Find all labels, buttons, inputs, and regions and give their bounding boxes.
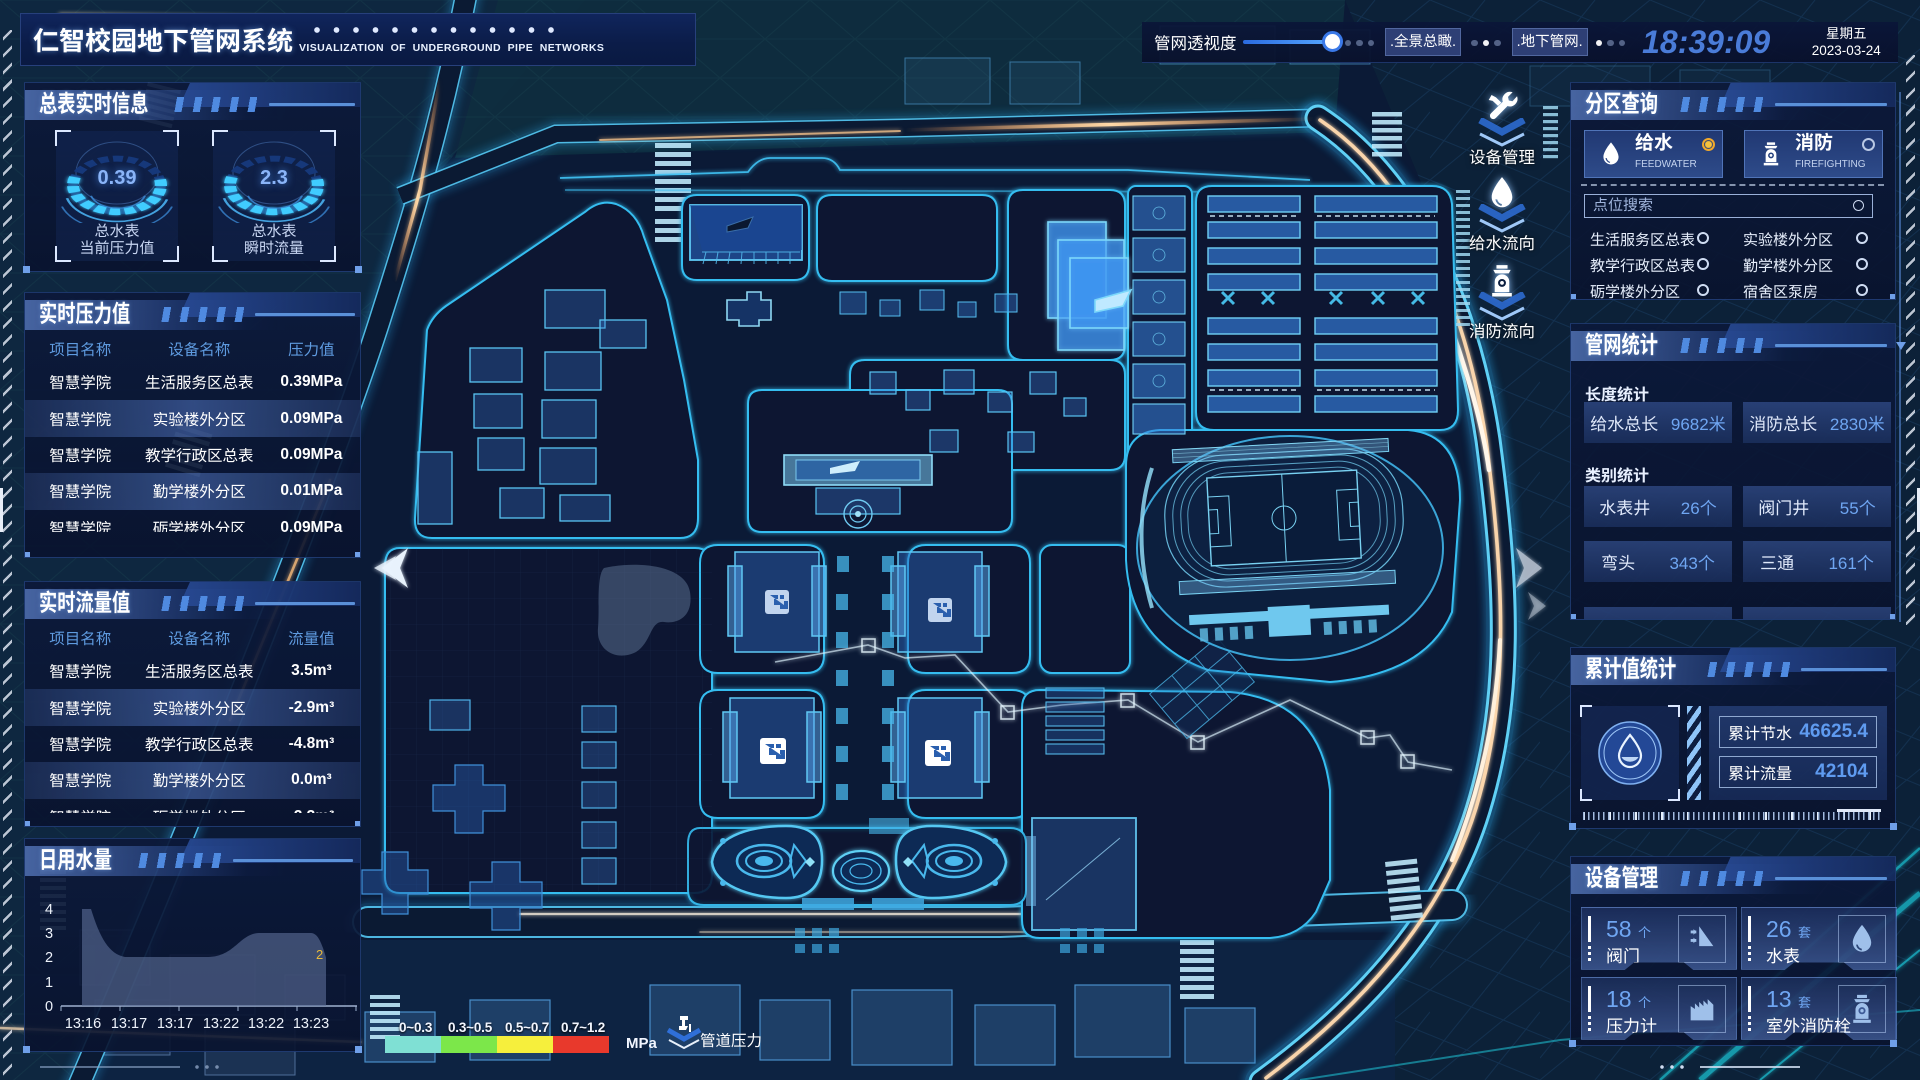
- svg-text:4: 4: [45, 902, 53, 918]
- svg-text:13:17: 13:17: [157, 1016, 193, 1032]
- svg-text:2: 2: [316, 947, 323, 962]
- svg-text:2: 2: [45, 950, 53, 966]
- svg-text:1: 1: [45, 975, 53, 991]
- svg-text:13:22: 13:22: [203, 1016, 239, 1032]
- svg-text:0: 0: [45, 999, 53, 1015]
- svg-text:3: 3: [45, 926, 53, 942]
- svg-text:13:17: 13:17: [111, 1016, 147, 1032]
- svg-text:13:16: 13:16: [65, 1016, 101, 1032]
- svg-text:13:23: 13:23: [293, 1016, 329, 1032]
- svg-text:13:22: 13:22: [248, 1016, 284, 1032]
